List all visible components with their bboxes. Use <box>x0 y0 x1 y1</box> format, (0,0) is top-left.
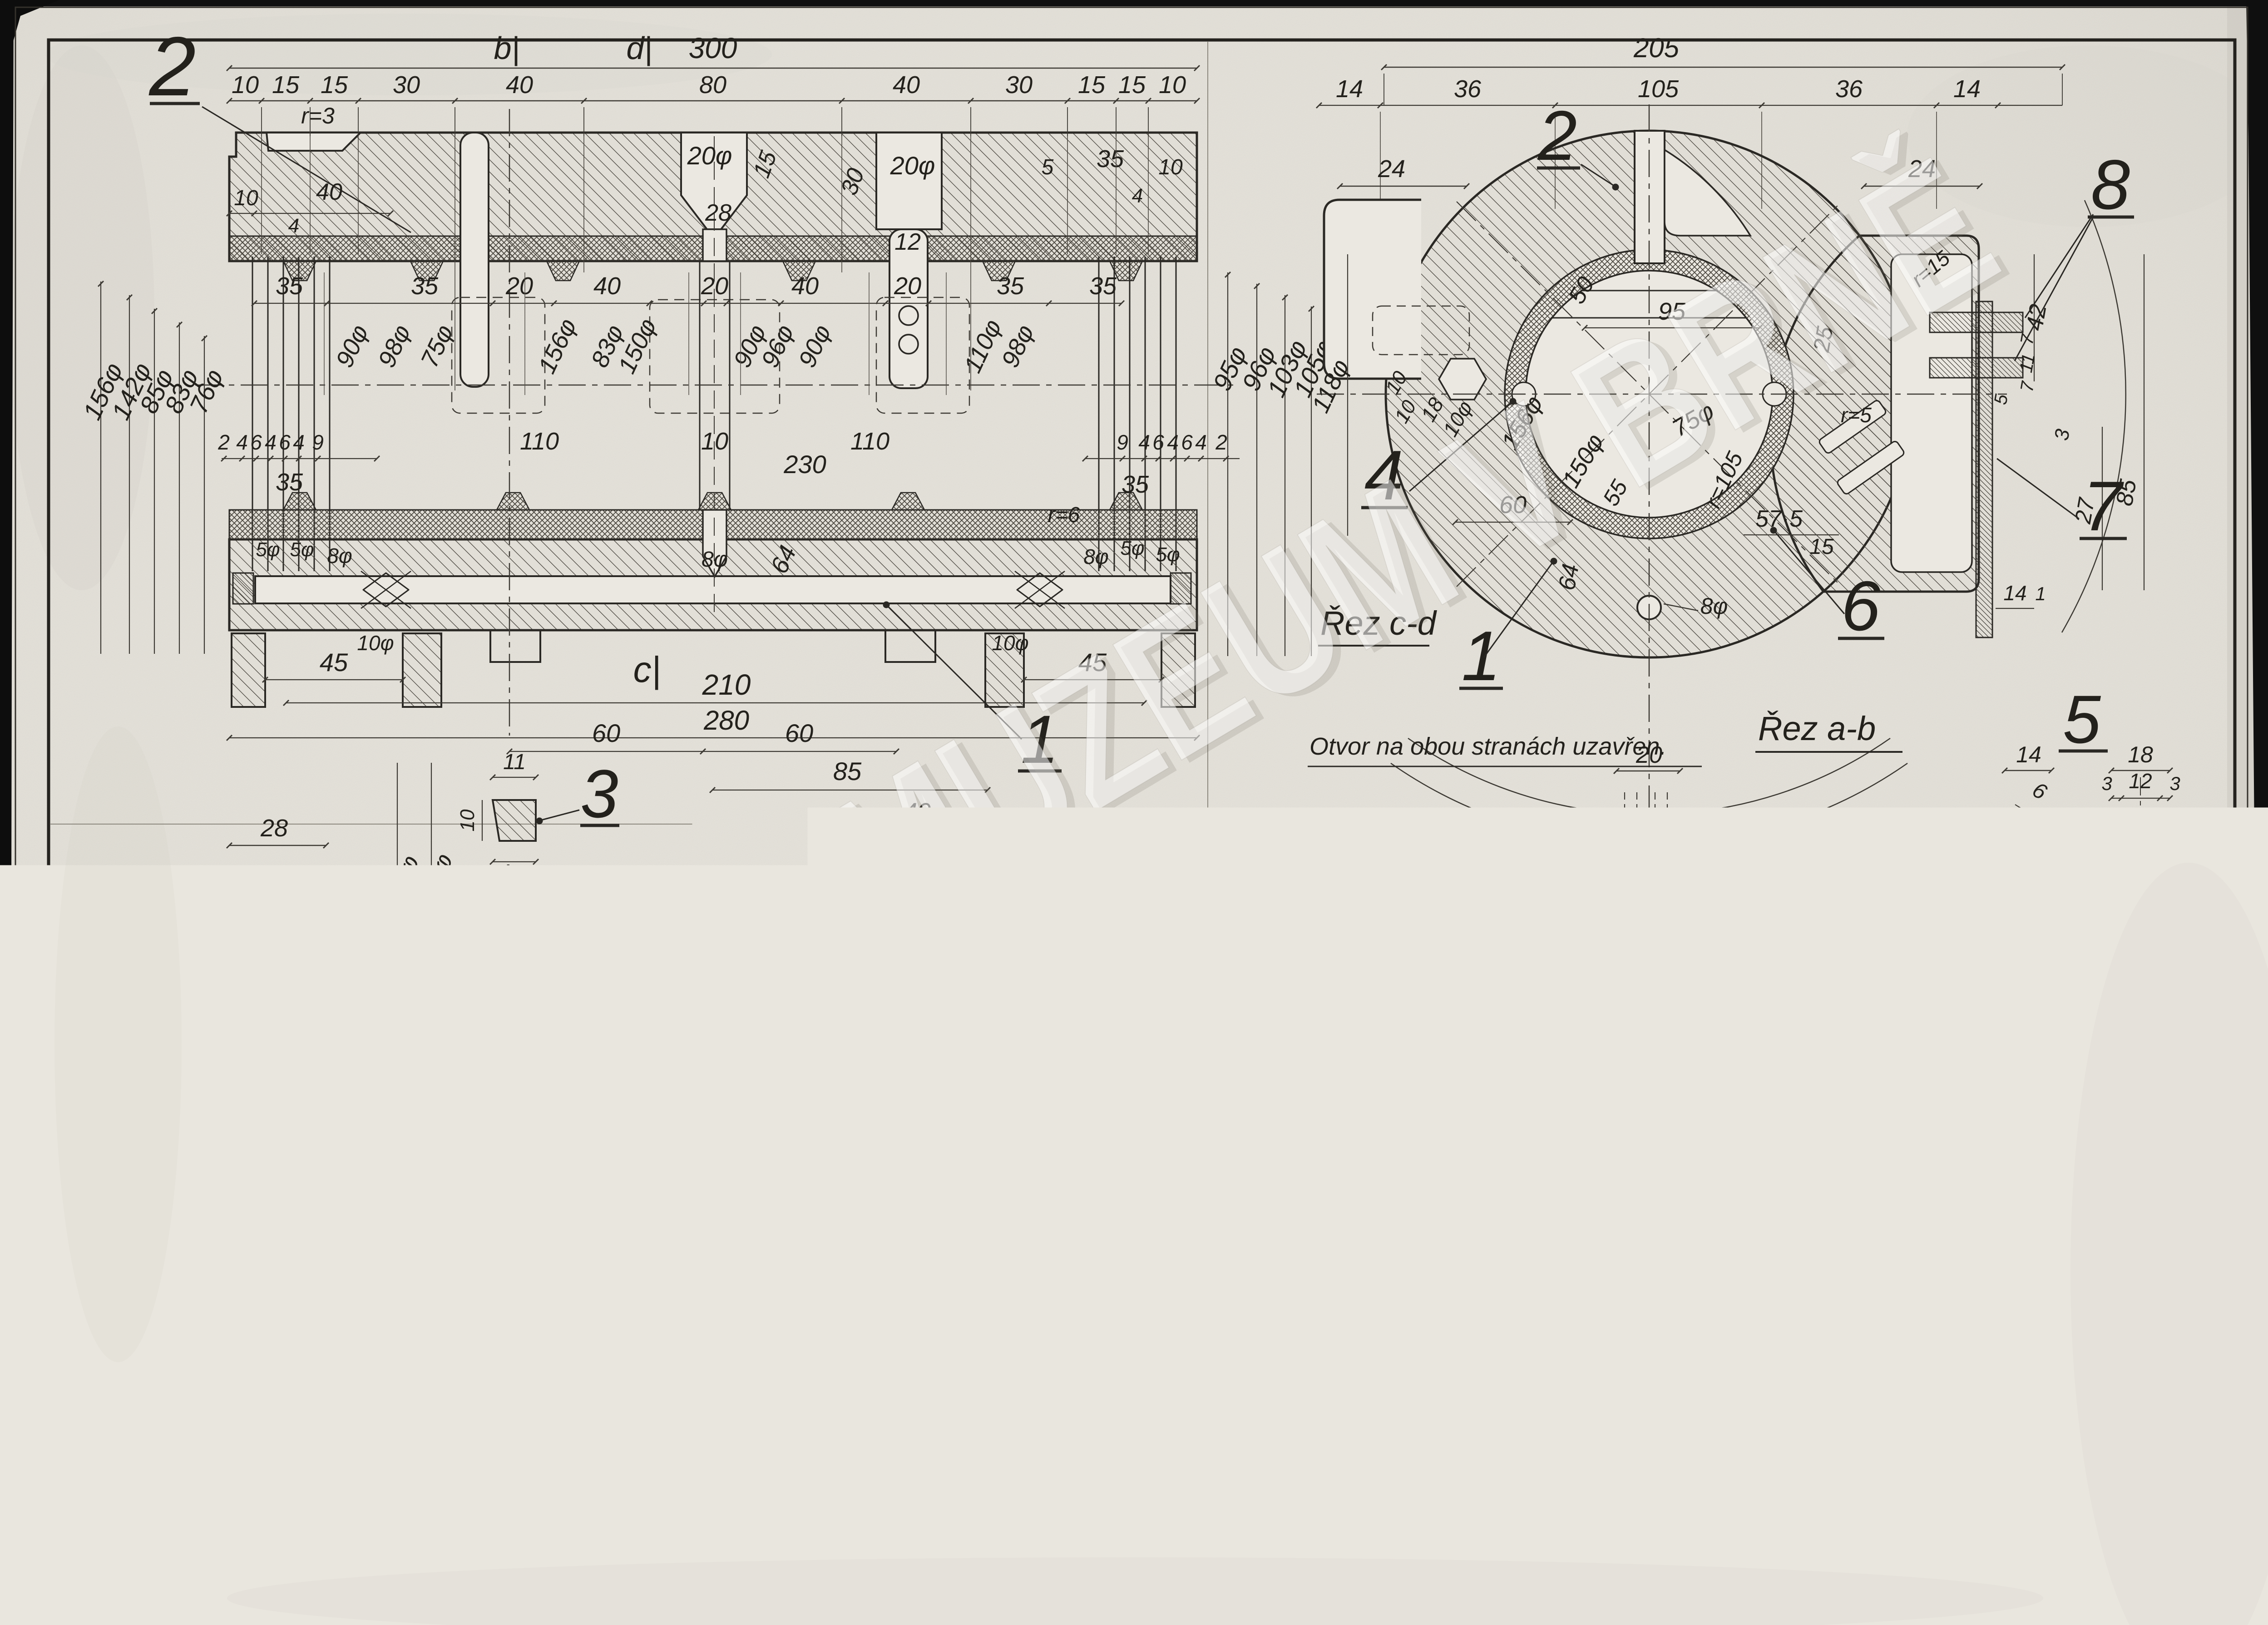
svg-text:210: 210 <box>702 668 751 701</box>
svg-text:4: 4 <box>265 430 277 454</box>
svg-text:K.ž.: K.ž. <box>1978 1318 2009 1338</box>
svg-text:I: I <box>1757 1466 1763 1488</box>
svg-text:80: 80 <box>699 71 726 99</box>
svg-text:30: 30 <box>1005 71 1033 99</box>
svg-text:20: 20 <box>701 272 728 300</box>
svg-text:6: 6 <box>279 430 291 454</box>
svg-text:35: 35 <box>276 272 303 300</box>
svg-text:230: 230 <box>783 450 826 479</box>
svg-text:123 E: 123 E <box>1422 1135 1566 1183</box>
svg-text:35: 35 <box>1089 272 1117 300</box>
svg-text:3: 3 <box>2169 773 2180 794</box>
svg-text:r=3: r=3 <box>301 103 335 128</box>
svg-text:IV: IV <box>1593 1399 1609 1417</box>
svg-text:19.3.23: 19.3.23 <box>104 1455 168 1476</box>
svg-text:Dvojdílný: Dvojdílný <box>1754 1340 1825 1359</box>
svg-text:1: 1 <box>1692 1358 1704 1382</box>
svg-text:14: 14 <box>2016 742 2041 767</box>
svg-text:4: 4 <box>1099 1010 1136 1086</box>
svg-text:205: 205 <box>1633 33 1680 63</box>
svg-text:Provedení: Provedení <box>1608 1429 1752 1459</box>
svg-text:6: 6 <box>1152 430 1164 454</box>
svg-text:c|: c| <box>633 649 661 690</box>
svg-text:8: 8 <box>1692 1226 1704 1250</box>
svg-text:14: 14 <box>1953 75 1981 103</box>
svg-text:″: ″ <box>1990 1295 1997 1315</box>
svg-text:40: 40 <box>893 71 920 99</box>
svg-text:4: 4 <box>1167 430 1179 454</box>
svg-text:Poznámka: Poznámka <box>1774 1402 1872 1426</box>
svg-text:105: 105 <box>1638 75 1679 103</box>
svg-text:Kroužek mazací: Kroužek mazací <box>2031 1339 2163 1359</box>
svg-text:se strany vrtání: se strany vrtání <box>1311 1320 1500 1351</box>
svg-text:6: 6 <box>250 430 262 454</box>
svg-text:4: 4 <box>1692 1249 1704 1272</box>
svg-text:Počet: Počet <box>1621 1412 1665 1431</box>
svg-text:10: 10 <box>234 186 258 210</box>
svg-text:40: 40 <box>791 272 819 300</box>
svg-text:15: 15 <box>321 71 348 99</box>
svg-text:1: 1 <box>2035 583 2046 604</box>
svg-text:Příložka: Příložka <box>2031 1295 2096 1315</box>
svg-text:kg: kg <box>1719 1412 1737 1431</box>
svg-text:9: 9 <box>1117 430 1128 454</box>
svg-text:4: 4 <box>1138 430 1150 454</box>
svg-text:12: 12 <box>1998 880 2021 902</box>
svg-text:Půlka pánve horní: Půlka pánve horní <box>2031 1362 2179 1382</box>
svg-text:24: 24 <box>1378 155 1405 183</box>
svg-text:8φ: 8φ <box>702 548 728 572</box>
svg-text:8φ: 8φ <box>1083 545 1109 568</box>
svg-text:Šroub: Šroub <box>2031 1273 2079 1294</box>
svg-text:5: 5 <box>2063 681 2101 757</box>
svg-text:se strany vrtání: se strany vrtání <box>1294 888 1482 919</box>
svg-text:Část: Část <box>2187 1401 2225 1422</box>
svg-text:2: 2 <box>1692 1314 1704 1338</box>
svg-text:60: 60 <box>928 1002 954 1028</box>
svg-text:10: 10 <box>1159 71 1186 99</box>
svg-text:60: 60 <box>785 719 813 747</box>
svg-text:10: 10 <box>232 71 259 99</box>
svg-text:30: 30 <box>393 71 420 99</box>
svg-text:Kolík: Kolík <box>2031 1318 2072 1338</box>
svg-text:III: III <box>1752 1526 1769 1548</box>
svg-text:Pohled na horní půlku: Pohled na horní půlku <box>1311 1276 1576 1306</box>
svg-text:Š.lit.: Š.lit. <box>1976 1361 2011 1382</box>
svg-text:Š.lit.: Š.lit. <box>1976 1383 2011 1403</box>
svg-text:20: 20 <box>505 272 533 300</box>
svg-text:20φ: 20φ <box>890 151 935 180</box>
svg-text:3: 3 <box>2101 773 2112 794</box>
svg-text:4: 4 <box>1625 870 1638 896</box>
svg-text:20: 20 <box>894 272 921 300</box>
svg-text:4: 4 <box>1692 1292 1704 1316</box>
svg-text:3: 3 <box>580 756 618 832</box>
svg-text:8: 8 <box>507 864 519 888</box>
svg-text:4: 4 <box>1132 185 1143 207</box>
svg-text:40: 40 <box>506 71 533 99</box>
svg-text:8φ: 8φ <box>1700 593 1728 619</box>
svg-text:38: 38 <box>891 1482 916 1508</box>
svg-text:Název: Název <box>2061 1400 2154 1424</box>
svg-text:18: 18 <box>2128 742 2153 767</box>
svg-text:15: 15 <box>1809 535 1834 559</box>
svg-text:Chránítko: Chránítko <box>2031 1252 2109 1272</box>
svg-text:Kreslil: Kreslil <box>49 1456 99 1476</box>
svg-text:8: 8 <box>1692 1205 1704 1228</box>
svg-text:{: { <box>1892 1366 1903 1402</box>
svg-text:5φ: 5φ <box>256 538 280 561</box>
svg-text:15: 15 <box>1078 71 1106 99</box>
svg-text:9: 9 <box>2016 904 2027 927</box>
svg-text:PÁNEV: PÁNEV <box>447 1526 641 1580</box>
svg-text:7: 7 <box>390 1358 430 1435</box>
svg-text:20: 20 <box>1636 742 1662 768</box>
svg-text:40: 40 <box>316 179 342 205</box>
svg-text:35: 35 <box>1097 145 1124 173</box>
svg-text:Otvor na obou stranách uzavřen: Otvor na obou stranách uzavřen. <box>1309 733 1666 760</box>
svg-text:12: 12 <box>894 1198 918 1222</box>
svg-text:5: 5 <box>2064 938 2086 949</box>
svg-text:K 150: K 150 <box>252 1528 371 1579</box>
svg-text:10: 10 <box>701 428 728 455</box>
svg-text:14: 14 <box>1336 75 1363 103</box>
svg-text:57·5: 57·5 <box>1755 506 1803 532</box>
svg-text:10: 10 <box>456 809 479 831</box>
svg-text:M201: M201 <box>1906 1360 1953 1382</box>
svg-text:M200: M200 <box>1906 1382 1954 1403</box>
svg-text:15: 15 <box>1118 71 1146 99</box>
svg-text:Kovem ložiskovým: Kovem ložiskovým <box>1754 1384 1897 1403</box>
svg-text:M 10134: M 10134 <box>52 1529 229 1580</box>
svg-text:11: 11 <box>503 750 526 774</box>
svg-text:r=5: r=5 <box>847 1480 878 1504</box>
svg-text:40: 40 <box>593 272 621 300</box>
svg-text:280: 280 <box>703 705 749 736</box>
svg-text:Změny a dodatky: Změny a dodatky <box>1896 1428 2100 1458</box>
svg-text:36: 36 <box>1835 75 1863 103</box>
svg-text:85: 85 <box>569 1321 598 1349</box>
svg-text:b|: b| <box>494 30 519 66</box>
svg-text:110: 110 <box>520 428 559 455</box>
svg-text:Kanál 3mm hlub.: Kanál 3mm hlub. <box>60 888 248 916</box>
svg-text:Mos.lit.: Mos.lit. <box>1965 1339 2022 1359</box>
svg-text:8φ: 8φ <box>327 544 352 568</box>
svg-text:IV: IV <box>1750 1556 1771 1578</box>
svg-text:Vylitý bílým: Vylitý bílým <box>1754 1363 1840 1382</box>
svg-text:12: 12 <box>894 229 921 255</box>
svg-text:I: I <box>1696 1399 1700 1417</box>
svg-text:2: 2 <box>1692 1336 1704 1360</box>
svg-text:5φ: 5φ <box>1120 537 1144 559</box>
svg-text:35: 35 <box>1122 471 1149 498</box>
svg-text:Řez a-b: Řez a-b <box>1758 710 1876 747</box>
svg-text:5φ: 5φ <box>290 538 314 561</box>
svg-text:2: 2 <box>1537 96 1577 175</box>
svg-text:K.ž.: K.ž. <box>1978 1230 2009 1250</box>
svg-text:60: 60 <box>592 719 620 747</box>
svg-text:2: 2 <box>148 20 196 114</box>
svg-text:II: II <box>1754 1496 1765 1518</box>
svg-text:Mos.: Mos. <box>1974 1208 2013 1228</box>
svg-text:8: 8 <box>1692 1270 1704 1294</box>
svg-text:4: 4 <box>236 430 248 454</box>
svg-text:4: 4 <box>293 430 305 454</box>
svg-text:300: 300 <box>689 32 737 64</box>
svg-text:4: 4 <box>288 215 299 237</box>
svg-text:Plochy opracované: Plochy opracované <box>1192 1495 1416 1524</box>
svg-text:35: 35 <box>411 272 439 300</box>
svg-text:10φ: 10φ <box>357 631 394 655</box>
svg-text:M202: M202 <box>1906 1338 1953 1359</box>
svg-text:15: 15 <box>272 71 300 99</box>
svg-text:6: 6 <box>1841 567 1881 645</box>
svg-text:Šroub: Šroub <box>2031 1207 2079 1228</box>
svg-text:35: 35 <box>276 469 303 496</box>
svg-text:10: 10 <box>1158 155 1183 179</box>
svg-text:″: ″ <box>1990 1274 1997 1294</box>
svg-text:1:1: 1:1 <box>683 1526 750 1580</box>
svg-text:Hmota: Hmota <box>1964 1405 2023 1427</box>
svg-text:2: 2 <box>217 430 230 454</box>
svg-text:d|: d| <box>626 30 652 66</box>
svg-text:Pohled na spodní půlku: Pohled na spodní půlku <box>1267 844 1552 874</box>
svg-text:5: 5 <box>1042 155 1054 179</box>
svg-text:36: 36 <box>1454 75 1482 103</box>
svg-text:″: ″ <box>1990 1252 1997 1272</box>
svg-text:9: 9 <box>312 430 324 454</box>
svg-text:6: 6 <box>1181 430 1193 454</box>
svg-text:Šroub: Šroub <box>2031 1229 2079 1250</box>
svg-text:7: 7 <box>2083 467 2124 545</box>
svg-text:110: 110 <box>850 428 889 455</box>
svg-text:Model: Model <box>1901 1403 1959 1427</box>
svg-text:35: 35 <box>997 272 1024 300</box>
svg-text:7: 7 <box>1998 847 2021 859</box>
svg-text:14: 14 <box>2003 581 2026 605</box>
svg-text:20φ: 20φ <box>687 141 732 170</box>
svg-text:4: 4 <box>1195 430 1207 454</box>
svg-text:2: 2 <box>1215 430 1227 454</box>
svg-text:8: 8 <box>2091 145 2130 224</box>
svg-text:r=6: r=6 <box>1048 503 1080 527</box>
svg-text:11: 11 <box>2016 352 2039 374</box>
svg-text:45: 45 <box>320 648 348 677</box>
svg-text:28: 28 <box>260 815 288 842</box>
svg-text:T.: T. <box>192 1453 208 1476</box>
svg-text:5: 5 <box>2053 905 2065 927</box>
svg-text:9: 9 <box>1695 873 1736 954</box>
svg-text:36: 36 <box>2053 855 2078 881</box>
svg-text:28: 28 <box>705 200 731 226</box>
